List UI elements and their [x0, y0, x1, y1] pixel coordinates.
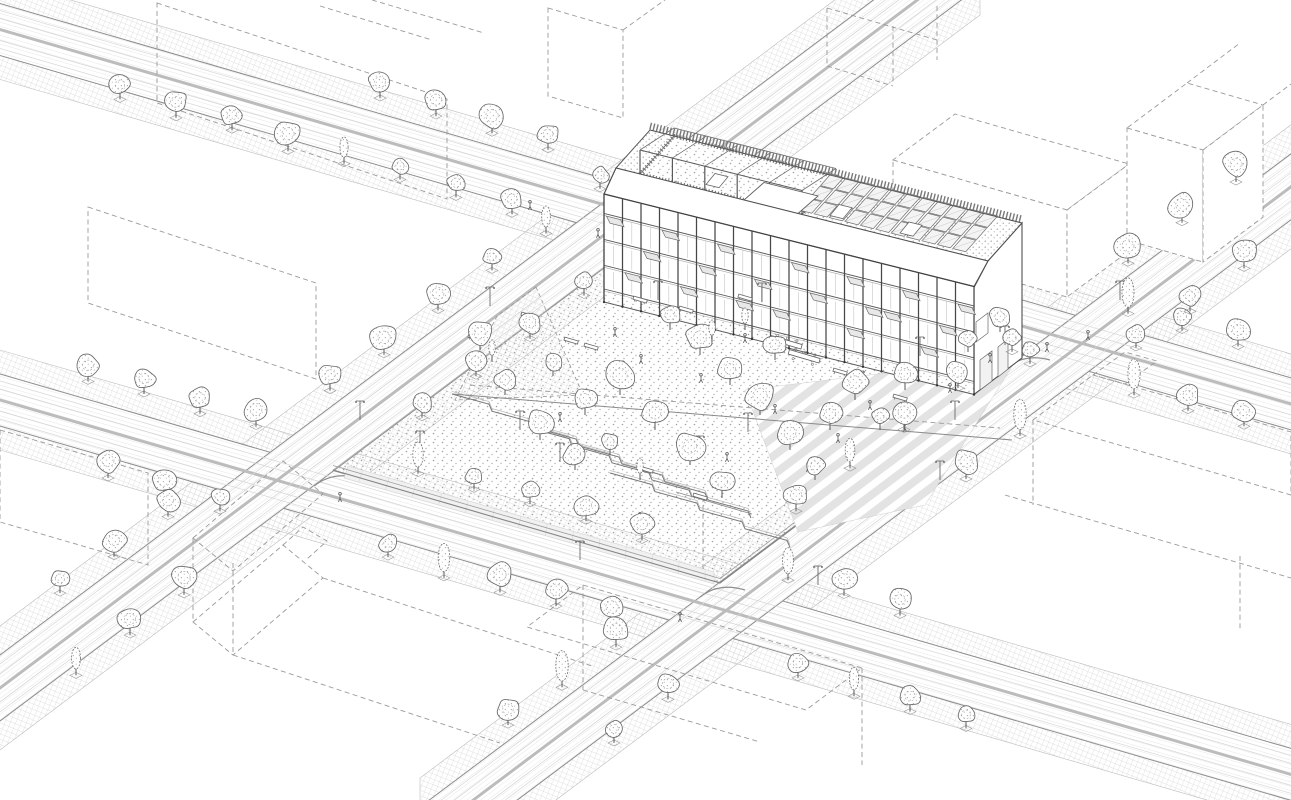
drawing-canvas — [0, 0, 1291, 800]
axonometric-site-drawing — [0, 0, 1291, 800]
